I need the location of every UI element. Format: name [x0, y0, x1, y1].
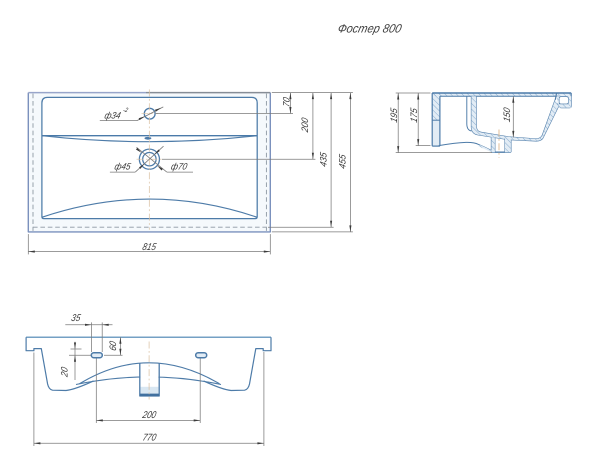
- svg-text:770: 770: [142, 432, 158, 443]
- svg-text:Фостер 800: Фостер 800: [336, 22, 403, 35]
- svg-text:200: 200: [141, 409, 158, 420]
- svg-text:ф45: ф45: [114, 161, 132, 171]
- svg-text:ф34: ф34: [104, 110, 122, 120]
- svg-text:150: 150: [502, 107, 512, 123]
- svg-text:ф70: ф70: [170, 161, 188, 171]
- svg-text:200: 200: [300, 117, 310, 134]
